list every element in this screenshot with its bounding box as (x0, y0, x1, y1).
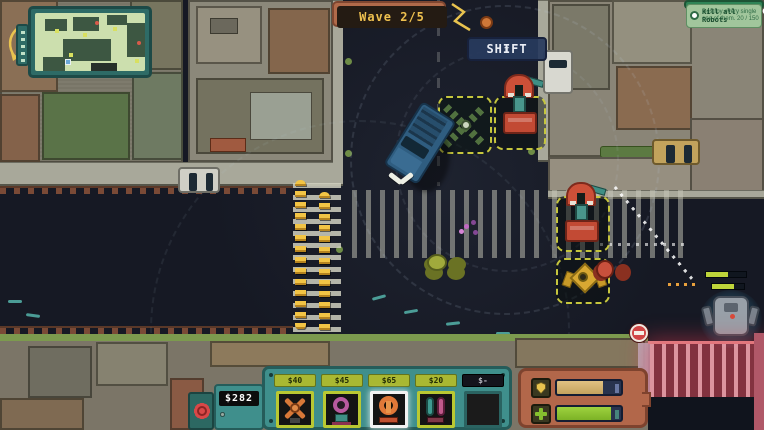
magnet-turret-icon[interactable] (370, 391, 408, 428)
money-display: $282 (219, 391, 259, 406)
skid-mark (26, 313, 40, 318)
building-roof (0, 94, 40, 162)
grass-tuft (345, 58, 352, 65)
boss-health-bar (705, 271, 747, 278)
mission-card: Kill all Robots Destroy every single one… (686, 4, 762, 28)
no-entry-sign (630, 324, 648, 342)
magnet-turret (498, 74, 544, 144)
civilian-car (178, 167, 220, 193)
building-roof (28, 346, 92, 398)
building-strip (754, 333, 764, 430)
health-icon (531, 404, 551, 424)
minimap-pickup (55, 29, 59, 33)
projectile-trail (600, 243, 686, 246)
shop-bar: $40 $45 $65 $20 $- (262, 366, 512, 430)
minimap-pickup (135, 59, 139, 63)
boss-health-bar (711, 283, 745, 290)
minimap-map (35, 13, 145, 71)
roof-vent (210, 18, 238, 34)
shield-icon (531, 378, 551, 398)
minimap (28, 6, 152, 78)
building-roof (210, 341, 330, 367)
panel-connector (642, 392, 651, 407)
mission-circle-icon (690, 11, 699, 20)
minimap-pickup (113, 27, 117, 31)
quad-turret-icon[interactable] (276, 391, 314, 428)
shield-bar (555, 379, 623, 396)
building-roof (196, 6, 262, 64)
price-badge: $20 (415, 374, 457, 387)
skid-mark (8, 300, 22, 303)
civilian-van (543, 50, 573, 94)
building-roof (96, 342, 168, 386)
gear-icon[interactable] (193, 402, 211, 420)
price-badge: $40 (274, 374, 316, 387)
money-panel-lights (220, 412, 260, 420)
enemy-robot (480, 16, 493, 29)
missions-panel: Missions Press Tab Place a turret Place … (684, 0, 764, 116)
lightning-decoration (448, 2, 478, 38)
game-screen: Wave 2/5 SHIFT ⇧ Missions Press Tab Plac… (0, 0, 764, 430)
roof-detail (210, 138, 246, 152)
courtyard-green (42, 92, 130, 160)
civilian-car (652, 139, 700, 165)
enemy-robot (427, 254, 447, 271)
money-machine-panel (188, 392, 214, 430)
danger-zone (650, 344, 764, 397)
price-badge: $45 (321, 374, 363, 387)
building-roof (268, 8, 330, 74)
building-roof (132, 72, 183, 160)
shift-arrow-icon: ⇧ (503, 42, 512, 57)
shop-slot-magnet-turret-selected[interactable]: $65 (366, 372, 412, 430)
building-block (690, 118, 764, 196)
water-dark (648, 397, 764, 430)
minimap-enemy-dot (137, 41, 141, 45)
boss-robot (713, 296, 749, 336)
tesla-turret-icon[interactable] (323, 391, 361, 428)
minimap-pickup (83, 33, 87, 37)
projectile-trail (668, 283, 698, 286)
minimap-player-dot (65, 59, 71, 65)
waypoint-chevron (388, 172, 414, 188)
enemy-robot (596, 260, 614, 279)
twin-turret-icon[interactable] (417, 391, 455, 428)
shop-slot-quad-turret[interactable]: $40 (272, 372, 318, 430)
magnet-turret (560, 182, 606, 252)
building-roof (0, 398, 84, 430)
shop-slot-tesla-turret[interactable]: $45 (319, 372, 365, 430)
wave-label: Wave 2/5 (359, 10, 425, 24)
minimap-pickup (69, 53, 73, 57)
shop-slot-empty[interactable]: $- (460, 372, 506, 430)
price-badge: $65 (368, 374, 410, 387)
shop-slot-twin-turret[interactable]: $20 (413, 372, 459, 430)
explosion-particles (464, 224, 469, 229)
price-badge: $- (462, 374, 504, 387)
building-roof (515, 338, 645, 368)
status-panel (518, 368, 648, 428)
health-bar (555, 405, 623, 422)
money-panel: $282 (214, 384, 264, 430)
wave-banner: Wave 2/5 (332, 1, 446, 27)
empty-slot-box[interactable] (464, 391, 502, 428)
park-center (461, 120, 471, 130)
building-roof (612, 0, 692, 64)
shift-key-hint: SHIFT ⇧ (467, 37, 547, 61)
minimap-enemy-dot (95, 21, 99, 25)
